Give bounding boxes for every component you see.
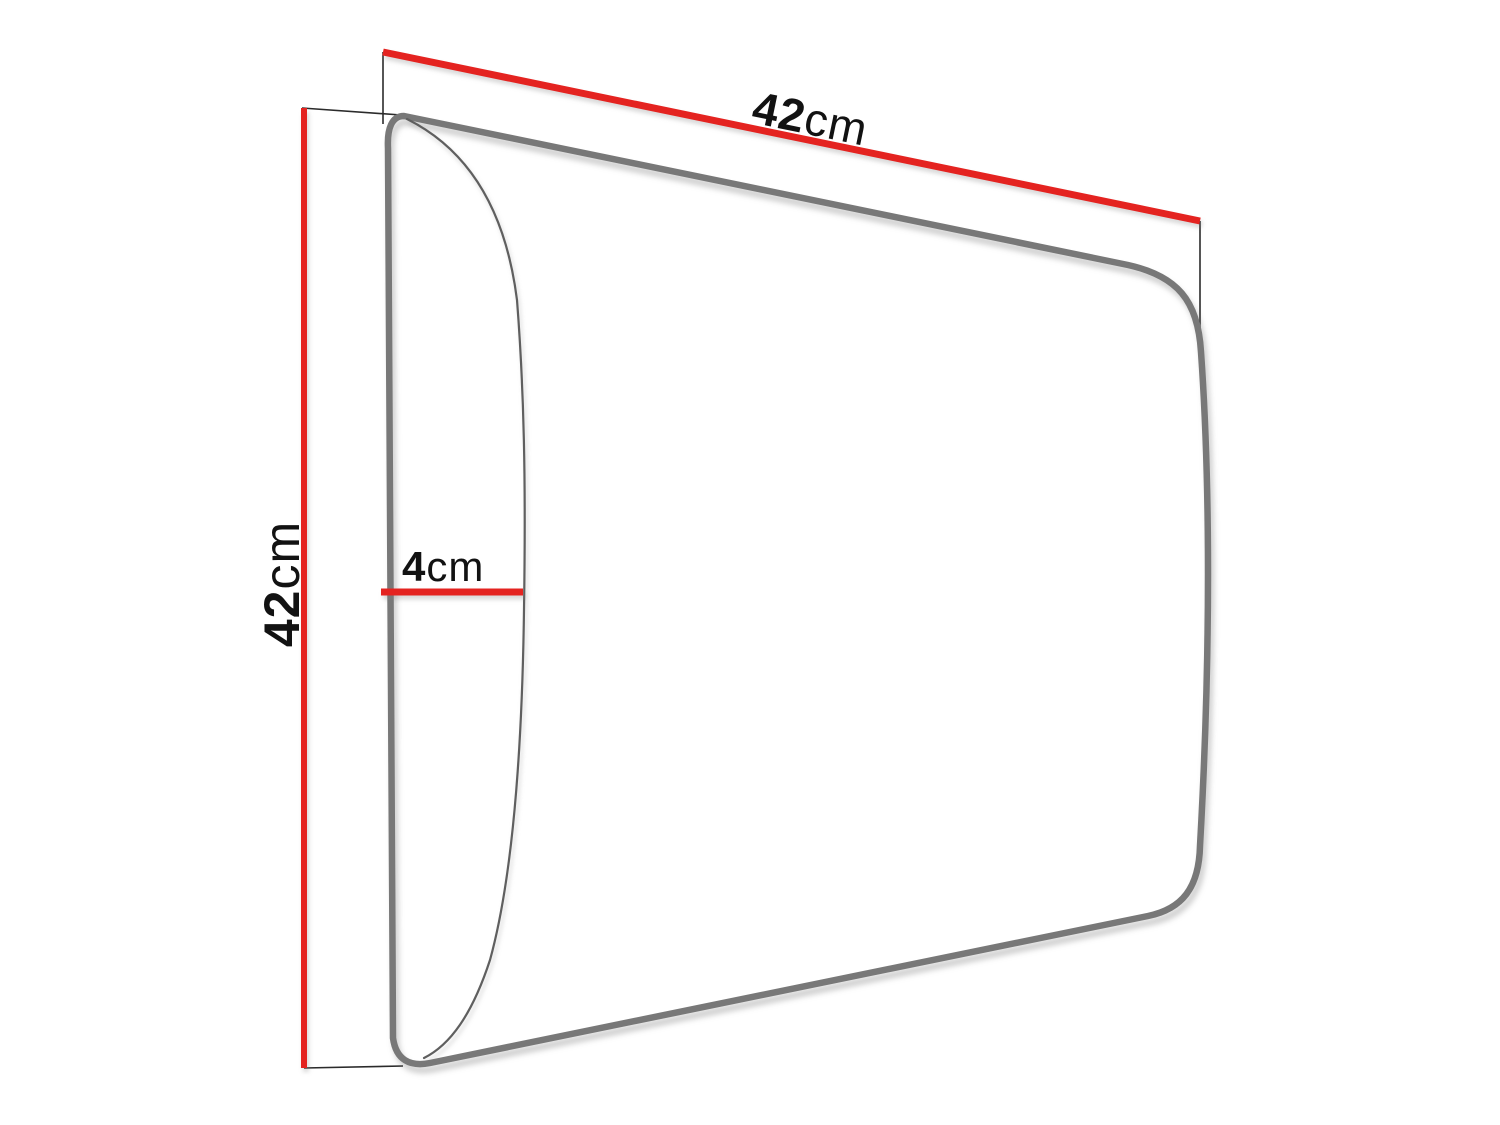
height-extension-line-top xyxy=(302,108,401,115)
depth-value: 4 xyxy=(402,543,426,590)
dimension-diagram: 42cm 42cm 4cm xyxy=(0,0,1500,1125)
depth-dimension-label: 4cm xyxy=(402,546,484,588)
height-extension-line-bottom xyxy=(304,1066,403,1068)
panel-drawing-canvas xyxy=(0,0,1500,1125)
height-value: 42 xyxy=(257,590,307,648)
height-unit: cm xyxy=(257,521,307,590)
height-dimension-label: 42cm xyxy=(257,499,307,669)
depth-unit: cm xyxy=(426,543,484,590)
